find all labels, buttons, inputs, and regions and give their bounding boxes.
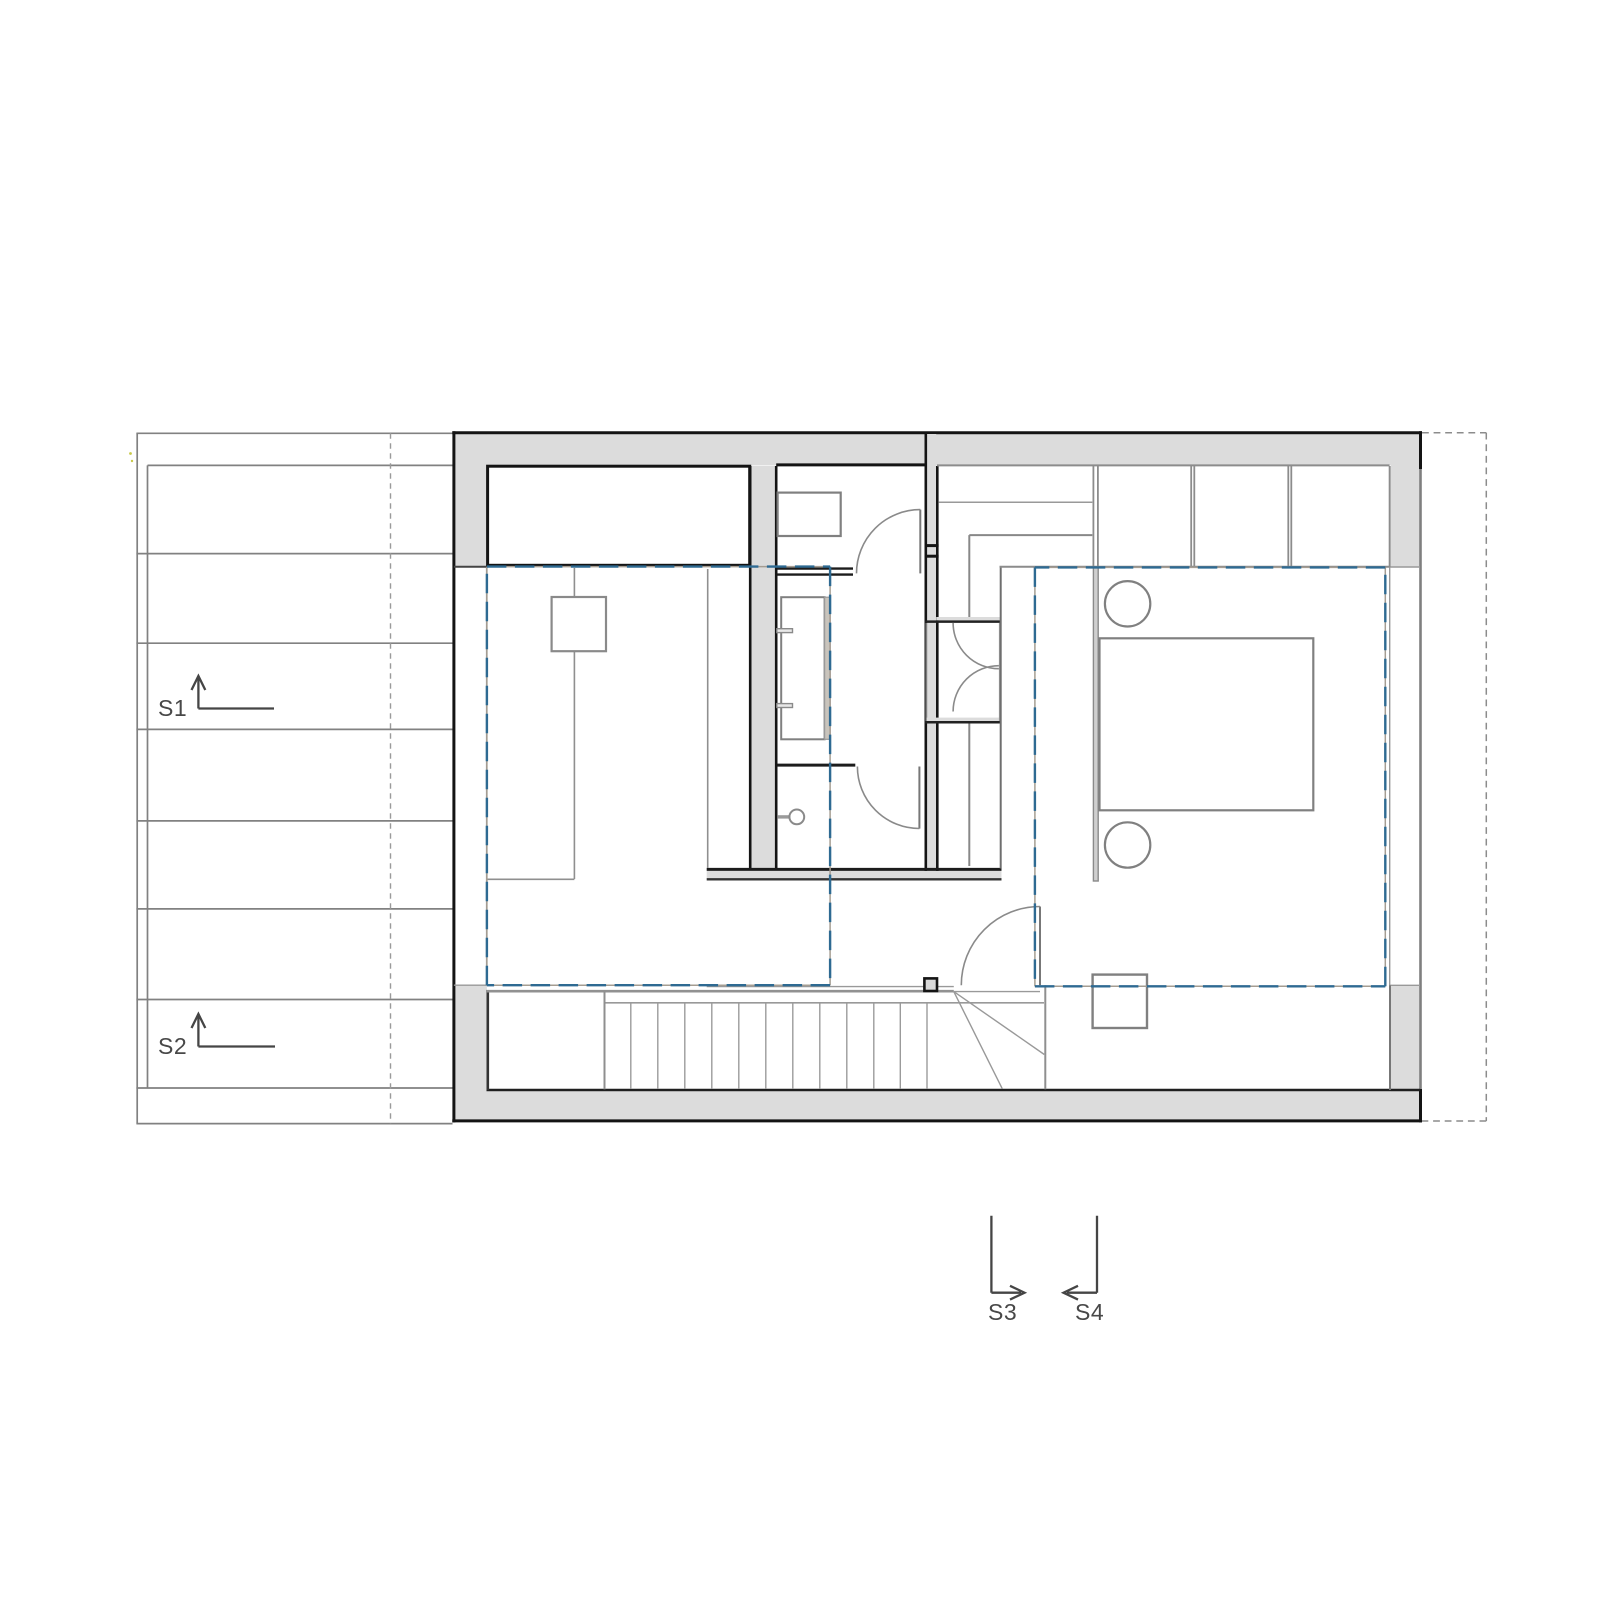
svg-text:S1: S1: [158, 695, 187, 721]
svg-text:S2: S2: [158, 1033, 187, 1059]
svg-text:S3: S3: [988, 1299, 1017, 1325]
svg-text:S4: S4: [1075, 1299, 1104, 1325]
